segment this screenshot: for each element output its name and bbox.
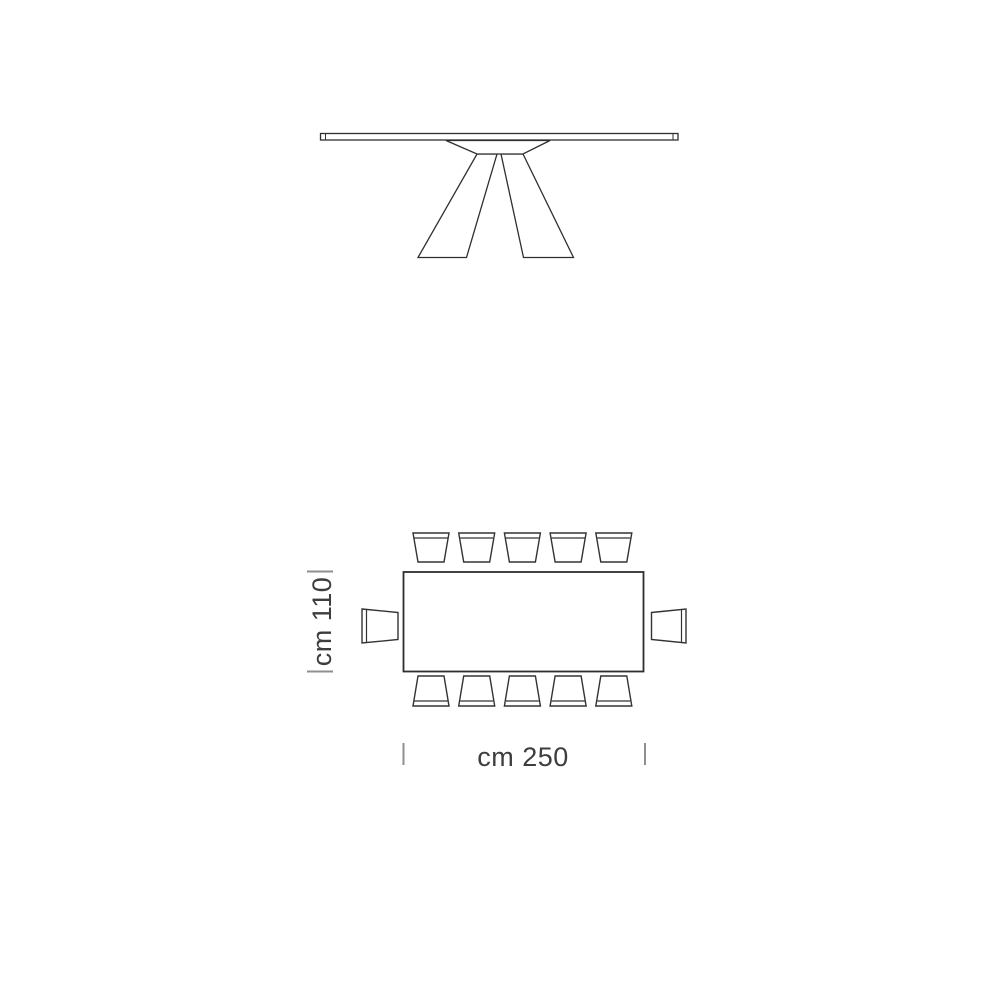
width-dimension: cm 250 xyxy=(404,742,646,772)
plan-view xyxy=(362,533,686,706)
pedestal-left-leg xyxy=(418,154,497,258)
technical-drawing-canvas: cm 110 cm 250 xyxy=(0,0,1000,1000)
tabletop-side-profile xyxy=(321,134,679,141)
front-elevation-view xyxy=(321,134,679,258)
pedestal-bracket xyxy=(446,141,550,155)
chair-plan-right xyxy=(652,609,687,643)
depth-dimension: cm 110 xyxy=(307,572,337,672)
chair-plan-top-3 xyxy=(504,533,540,562)
chair-plan-top-5 xyxy=(596,533,632,562)
plan-chairs-bottom xyxy=(413,676,632,706)
chair-plan-left xyxy=(362,609,398,643)
pedestal-right-leg xyxy=(501,154,574,258)
depth-dimension-label: cm 110 xyxy=(307,577,337,667)
chair-plan-top-2 xyxy=(459,533,495,562)
chair-plan-top-1 xyxy=(413,533,449,562)
plan-chairs-top xyxy=(413,533,632,562)
table-top-plan xyxy=(404,572,644,672)
drawing-page: cm 110 cm 250 xyxy=(0,0,1000,1000)
width-dimension-label: cm 250 xyxy=(477,742,569,772)
chair-plan-top-4 xyxy=(550,533,586,562)
